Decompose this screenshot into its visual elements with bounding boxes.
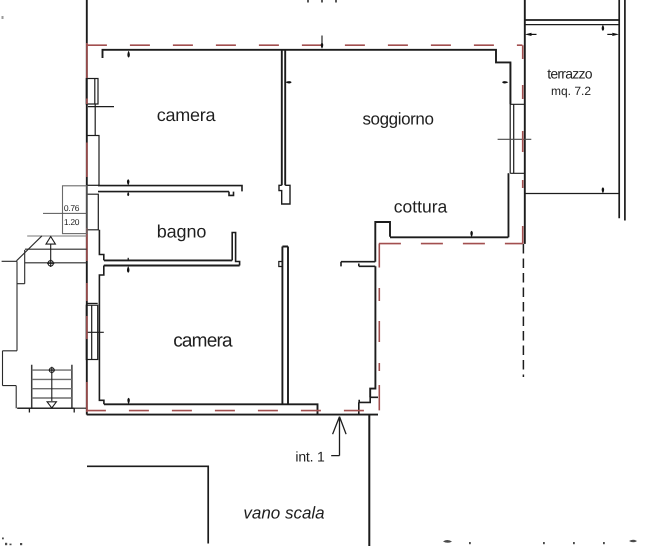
svg-text:soggiorno: soggiorno [362,110,433,129]
svg-text:cottura: cottura [394,197,448,217]
svg-text:0.76: 0.76 [64,203,80,213]
svg-text:camera: camera [173,331,233,352]
svg-text:int. 1: int. 1 [295,448,325,464]
svg-text:terrazzo: terrazzo [547,65,593,81]
svg-text:camera: camera [157,105,217,125]
svg-text:bagno: bagno [157,222,207,242]
svg-text:mq. 7.2: mq. 7.2 [551,84,591,98]
svg-text:1.20: 1.20 [64,217,80,227]
svg-text:vano scala: vano scala [243,504,324,523]
